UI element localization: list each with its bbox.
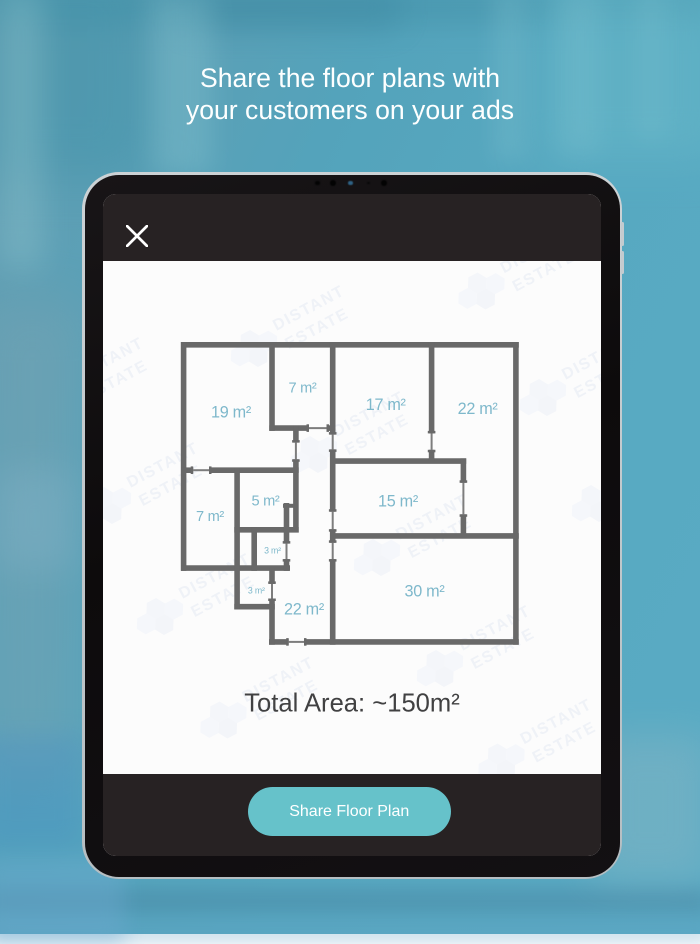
svg-text:3 m²: 3 m²: [264, 545, 281, 555]
svg-text:17 m²: 17 m²: [366, 396, 407, 414]
svg-text:7 m²: 7 m²: [196, 508, 224, 524]
svg-text:22 m²: 22 m²: [284, 600, 325, 618]
svg-text:22 m²: 22 m²: [458, 400, 499, 418]
svg-text:19 m²: 19 m²: [211, 403, 252, 421]
svg-text:7 m²: 7 m²: [289, 380, 317, 396]
svg-text:3 m²: 3 m²: [248, 585, 265, 595]
svg-text:30 m²: 30 m²: [405, 582, 446, 600]
svg-text:15 m²: 15 m²: [378, 492, 419, 510]
svg-text:5 m²: 5 m²: [252, 493, 280, 509]
svg-text:Total Area: ~150m²: Total Area: ~150m²: [244, 689, 460, 717]
